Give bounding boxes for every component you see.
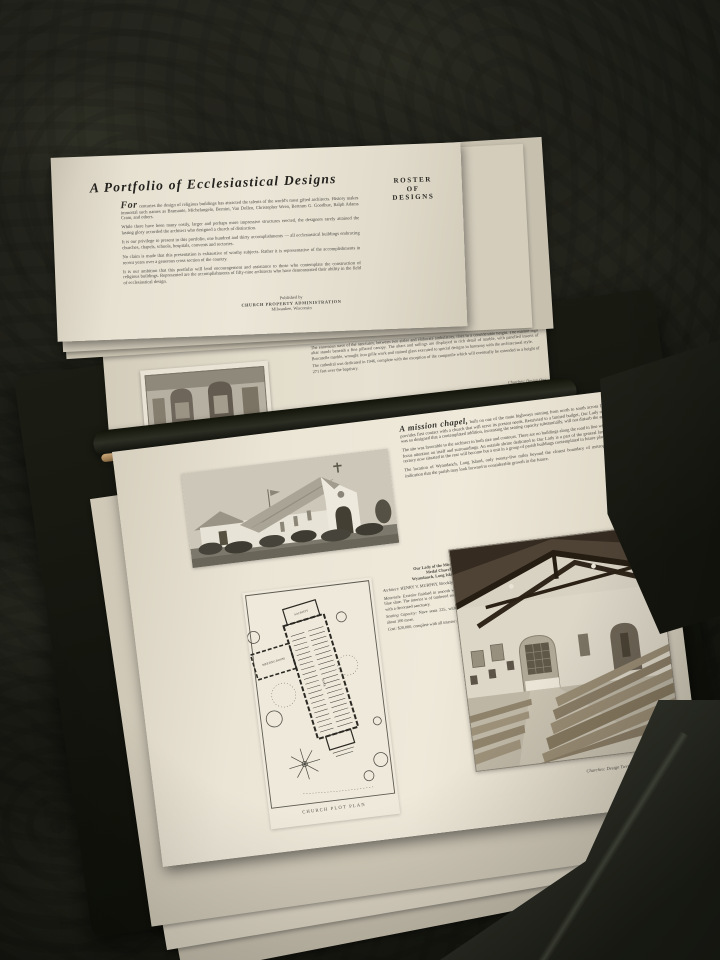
spec-label: Cost: (387, 626, 397, 632)
roster-line: DESIGNS (392, 192, 434, 202)
chapel-exterior-photo (181, 448, 399, 568)
church-plot-plan-drawing: SACRISTY MEETING ROOM NAVE (242, 577, 400, 829)
title-page-body-text: For centuries the design of religious bu… (120, 194, 361, 289)
svg-text:MEETING ROOM: MEETING ROOM (262, 656, 286, 667)
chapel-exterior-graphic (181, 448, 399, 568)
svg-text:NAVE: NAVE (321, 678, 327, 687)
photo-scene: A Portfolio of Ecclesiastical Designs RO… (0, 0, 720, 960)
page-title: A Portfolio of Ecclesiastical Designs (90, 171, 337, 196)
plot-plan-graphic: SACRISTY MEETING ROOM NAVE (242, 577, 400, 829)
publisher-block: Published by CHURCH PROPERTY ADMINISTRAT… (206, 292, 377, 315)
roster-of-designs-label: ROSTER OF DESIGNS (392, 175, 435, 202)
title-page: A Portfolio of Ecclesiastical Designs RO… (51, 142, 468, 342)
roster-line: ROSTER (392, 175, 434, 185)
svg-text:SACRISTY: SACRISTY (294, 608, 310, 616)
spec-label: Architect: (383, 586, 400, 593)
